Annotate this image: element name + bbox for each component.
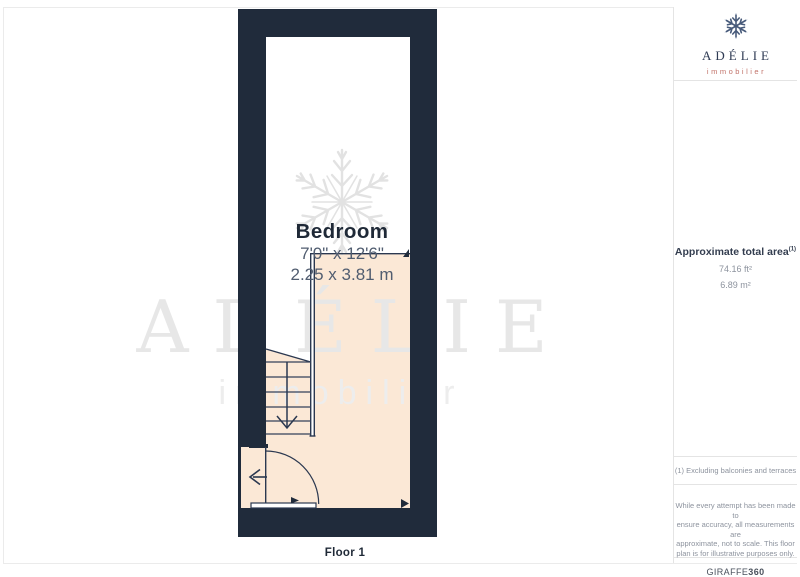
watermark-brand: ADÉLIE (135, 284, 571, 369)
room-dims-imperial: 7'0" x 12'6" (300, 244, 384, 263)
disclaimer-line: ensure accuracy, all measurements are (674, 520, 797, 539)
wall-right (410, 9, 437, 537)
giraffe-brand: GIRAFFE360 (674, 567, 797, 577)
disclaimer-line: plan is for illustrative purposes only. (674, 549, 797, 559)
logo-subtitle: immobilier (674, 67, 797, 76)
logo-block: ADÉLIE immobilier (674, 11, 797, 76)
area-title: Approximate total area(1) (674, 246, 797, 258)
wall-top (238, 9, 437, 37)
area-imperial: 74.16 ft² (674, 264, 797, 274)
floorplan-page: { "page": { "floor_label": "Floor 1" }, … (0, 0, 800, 566)
logo-brand: ADÉLIE (674, 48, 797, 64)
giraffe-brand-text: GIRAFFE (706, 567, 748, 577)
total-area-block: Approximate total area(1) 74.16 ft² 6.89… (674, 246, 797, 290)
floor-label: Floor 1 (325, 547, 366, 559)
disclaimer-line: While every attempt has been made to (674, 501, 797, 520)
disclaimer-line: approximate, not to scale. This floor (674, 539, 797, 549)
wall-alcove-thin (238, 447, 241, 508)
area-title-text: Approximate total area (675, 246, 789, 258)
disclaimer-block: While every attempt has been made to ens… (674, 491, 797, 577)
sidebar: ADÉLIE immobilier Approximate total area… (673, 7, 797, 563)
footnote: (1) Excluding balconies and terraces (674, 456, 797, 484)
wall-left (238, 9, 266, 447)
wall-bottom (238, 508, 437, 537)
room-label: Bedroom (296, 220, 389, 243)
room-dims-metric: 2.25 x 3.81 m (290, 265, 393, 284)
floorplan-canvas: ADÉLIE immobilier (0, 0, 676, 566)
sidebar-divider (674, 484, 797, 485)
giraffe-brand-number: 360 (748, 567, 764, 577)
area-metric: 6.89 m² (674, 280, 797, 290)
logo-snowflake-icon (721, 11, 751, 41)
sidebar-divider (674, 80, 797, 81)
area-title-footnote-ref: (1) (789, 247, 796, 253)
door-threshold (251, 503, 316, 508)
